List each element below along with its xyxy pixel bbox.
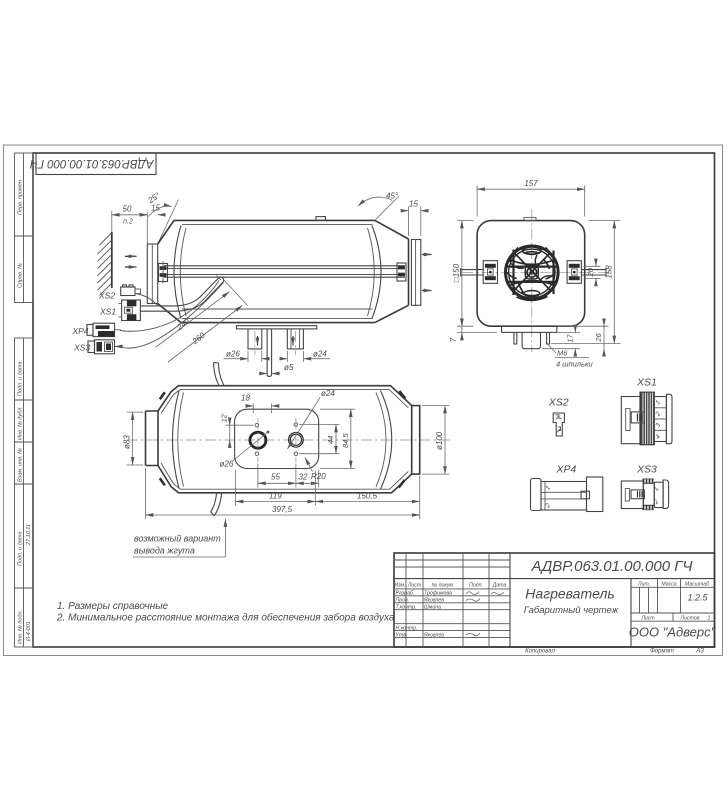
svg-text:А3: А3 bbox=[695, 648, 704, 655]
svg-text:Разраб.: Разраб. bbox=[396, 591, 415, 597]
svg-text:Утв.: Утв. bbox=[396, 632, 408, 638]
svg-text:Яковлев: Яковлев bbox=[423, 598, 444, 604]
svg-text:4 шпильки: 4 шпильки bbox=[556, 360, 593, 369]
svg-text:18: 18 bbox=[241, 393, 250, 402]
svg-text:26: 26 bbox=[594, 333, 603, 343]
svg-text:вывода жгута: вывода жгута bbox=[134, 546, 195, 556]
svg-text:Н.контр.: Н.контр. bbox=[396, 625, 418, 631]
svg-text:Справ. №: Справ. № bbox=[18, 263, 24, 288]
svg-text:XS1: XS1 bbox=[636, 377, 657, 389]
svg-text:Лит.: Лит. bbox=[637, 581, 650, 587]
svg-text:возможный вариант: возможный вариант bbox=[134, 534, 221, 544]
svg-text:ø24: ø24 bbox=[313, 350, 327, 359]
svg-text:XS3: XS3 bbox=[636, 464, 657, 476]
svg-text:Масса: Масса bbox=[661, 581, 676, 587]
svg-text:Т.контр.: Т.контр. bbox=[396, 604, 417, 610]
svg-text:32: 32 bbox=[299, 473, 308, 482]
svg-text:Дата: Дата bbox=[492, 583, 507, 589]
svg-text:55: 55 bbox=[271, 473, 280, 482]
svg-text:12: 12 bbox=[220, 413, 229, 422]
svg-text:ХР4: ХР4 bbox=[72, 326, 89, 336]
svg-text:15: 15 bbox=[409, 200, 418, 209]
svg-text:7: 7 bbox=[449, 337, 458, 342]
svg-text:1:2.5: 1:2.5 bbox=[687, 593, 708, 603]
svg-text:Нагреватель: Нагреватель bbox=[525, 586, 614, 602]
svg-text:XS1: XS1 bbox=[99, 307, 116, 317]
svg-text:2. Минимальное расстояние монт: 2. Минимальное расстояние монтажа для об… bbox=[56, 612, 395, 624]
svg-text:АДВР.063.01.00.000 ГЧ: АДВР.063.01.00.000 ГЧ bbox=[30, 157, 155, 169]
svg-text:45°: 45° bbox=[386, 192, 399, 201]
svg-text:Габаритный чертеж: Габаритный чертеж bbox=[524, 605, 619, 616]
svg-text:Листов: Листов bbox=[680, 615, 700, 621]
svg-text:44: 44 bbox=[326, 436, 335, 444]
svg-text:XS2: XS2 bbox=[98, 291, 115, 301]
svg-text:397,5: 397,5 bbox=[272, 505, 293, 514]
svg-text:20: 20 bbox=[586, 267, 595, 277]
svg-text:ООО "Адверс": ООО "Адверс" bbox=[629, 625, 717, 640]
svg-text:Взам. инв. №: Взам. инв. № bbox=[18, 448, 24, 482]
svg-text:ø5: ø5 bbox=[284, 363, 294, 372]
svg-text:п.2: п.2 bbox=[123, 219, 133, 226]
svg-text:Лист: Лист bbox=[407, 583, 422, 589]
svg-text:И-4-001: И-4-001 bbox=[26, 621, 32, 641]
svg-text:R20: R20 bbox=[311, 472, 326, 481]
svg-text:ø26: ø26 bbox=[220, 460, 234, 469]
svg-text:Масштаб: Масштаб bbox=[685, 581, 710, 587]
svg-text:XS2: XS2 bbox=[548, 397, 569, 409]
svg-text:1: 1 bbox=[708, 615, 711, 621]
svg-text:АДВР.063.01.00.000 ГЧ: АДВР.063.01.00.000 ГЧ bbox=[531, 558, 694, 575]
svg-text:27.10.11: 27.10.11 bbox=[26, 524, 32, 546]
svg-text:Трофимова: Трофимова bbox=[424, 591, 452, 597]
svg-text:□150: □150 bbox=[452, 263, 461, 282]
svg-text:Копировал: Копировал bbox=[525, 649, 555, 655]
svg-text:ø26: ø26 bbox=[226, 350, 240, 359]
svg-text:84.5: 84.5 bbox=[341, 433, 350, 448]
svg-text:157: 157 bbox=[524, 179, 538, 188]
svg-text:158: 158 bbox=[605, 265, 614, 279]
svg-text:Лист: Лист bbox=[640, 615, 655, 621]
svg-text:ø24: ø24 bbox=[321, 389, 335, 398]
svg-text:Инв. № дубл.: Инв. № дубл. bbox=[18, 406, 24, 440]
svg-text:Изм.: Изм. bbox=[394, 583, 405, 589]
svg-text:1. Размеры справочные: 1. Размеры справочные bbox=[57, 601, 169, 612]
svg-text:№ докум.: № докум. bbox=[432, 583, 455, 589]
svg-text:М6: М6 bbox=[557, 349, 568, 358]
svg-text:ø100: ø100 bbox=[435, 431, 444, 450]
svg-text:Инв. № подл.: Инв. № подл. bbox=[18, 610, 24, 644]
svg-text:ХР4: ХР4 bbox=[556, 464, 577, 476]
svg-text:Пров.: Пров. bbox=[396, 598, 410, 604]
svg-text:Подп. и дата: Подп. и дата bbox=[18, 532, 24, 566]
svg-text:119: 119 bbox=[269, 492, 282, 501]
svg-text:17: 17 bbox=[565, 334, 574, 343]
svg-text:Перв. примен.: Перв. примен. bbox=[18, 178, 24, 215]
svg-text:150,5: 150,5 bbox=[357, 492, 378, 501]
svg-text:Подп. и дата: Подп. и дата bbox=[18, 362, 24, 396]
svg-text:ø83: ø83 bbox=[123, 435, 132, 449]
svg-text:Формат: Формат bbox=[650, 649, 674, 655]
svg-text:Яковлев: Яковлев bbox=[423, 632, 444, 638]
svg-text:Подп.: Подп. bbox=[469, 583, 483, 589]
svg-text:Шмина: Шмина bbox=[424, 604, 441, 610]
svg-text:50: 50 bbox=[123, 204, 132, 213]
